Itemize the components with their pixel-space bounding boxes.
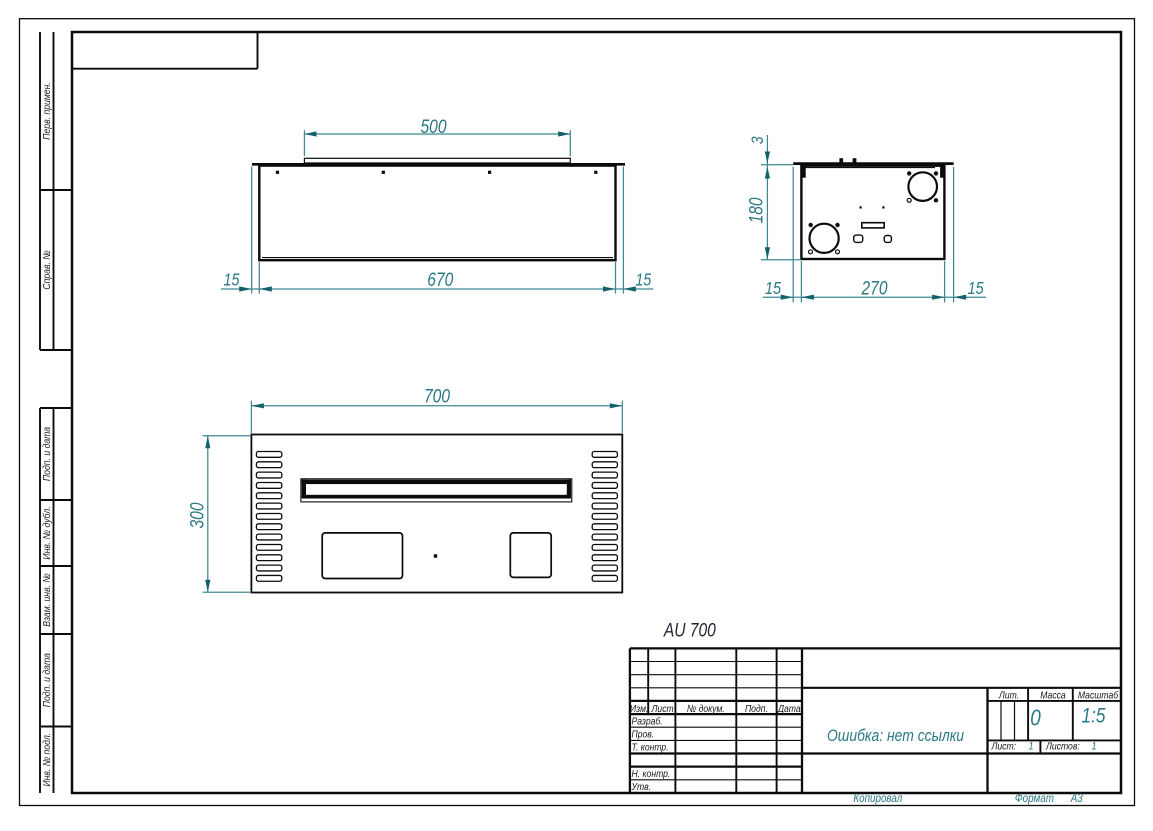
svg-text:Т. контр.: Т. контр. (632, 742, 669, 754)
svg-text:Лист: Лист (651, 703, 674, 715)
svg-text:1: 1 (1091, 741, 1096, 753)
svg-text:3: 3 (749, 136, 768, 144)
svg-text:15: 15 (635, 271, 651, 290)
svg-text:Лист:: Лист: (991, 741, 1017, 753)
svg-text:Инв. № дубл.: Инв. № дубл. (41, 506, 53, 559)
svg-text:Разраб.: Разраб. (632, 716, 663, 728)
svg-text:Подп. и дата: Подп. и дата (41, 653, 53, 707)
svg-text:1:5: 1:5 (1082, 705, 1106, 728)
svg-text:180: 180 (745, 197, 767, 223)
svg-text:15: 15 (968, 280, 984, 299)
svg-text:500: 500 (421, 116, 447, 138)
svg-text:Дата: Дата (777, 703, 801, 715)
svg-text:Пров.: Пров. (632, 729, 655, 741)
svg-text:Взам. инв. №: Взам. инв. № (41, 573, 53, 627)
svg-text:Масштаб: Масштаб (1078, 690, 1119, 702)
svg-text:Справ. №: Справ. № (41, 250, 53, 289)
svg-text:300: 300 (186, 502, 208, 528)
svg-text:Н. контр.: Н. контр. (632, 768, 671, 780)
svg-text:Копировал: Копировал (853, 792, 902, 805)
svg-text:15: 15 (224, 271, 240, 290)
svg-text:А3: А3 (1070, 792, 1083, 805)
svg-text:0: 0 (1030, 706, 1041, 731)
svg-text:Масса: Масса (1040, 690, 1065, 702)
svg-text:AU 700: AU 700 (663, 619, 716, 641)
svg-text:Изм.: Изм. (630, 703, 648, 715)
svg-text:№ докум.: № докум. (687, 703, 725, 715)
svg-text:Инв. № подл.: Инв. № подл. (41, 733, 53, 787)
svg-text:270: 270 (861, 277, 888, 299)
svg-text:Листов:: Листов: (1045, 741, 1080, 753)
svg-text:700: 700 (424, 385, 450, 407)
svg-text:670: 670 (427, 268, 453, 290)
svg-text:Утв.: Утв. (631, 781, 651, 793)
svg-text:Ошибка: нет ссылки: Ошибка: нет ссылки (827, 727, 964, 746)
svg-text:1: 1 (1028, 741, 1033, 753)
svg-text:Подп. и дата: Подп. и дата (41, 427, 53, 481)
svg-text:Лит.: Лит. (998, 690, 1019, 702)
svg-text:Формат: Формат (1015, 792, 1054, 805)
svg-text:15: 15 (765, 280, 781, 299)
svg-text:Перв. примен.: Перв. примен. (41, 82, 53, 140)
svg-text:Подп.: Подп. (745, 703, 768, 715)
